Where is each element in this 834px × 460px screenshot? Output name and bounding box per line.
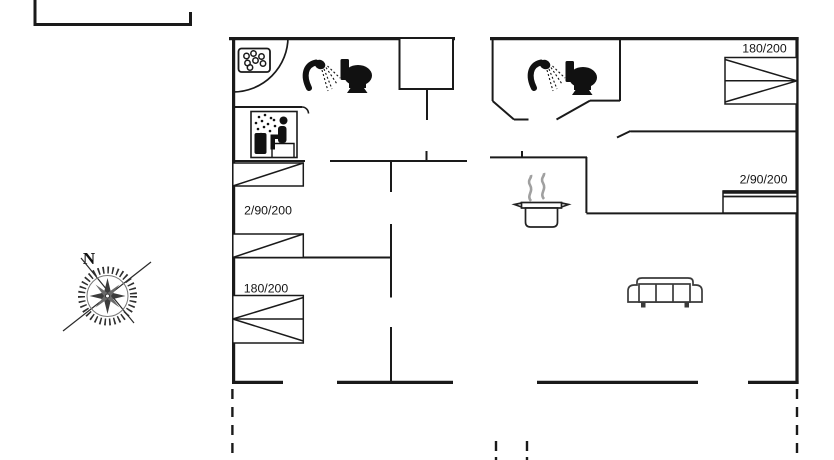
annex-outline	[35, 0, 191, 25]
washing-machine-icon	[239, 49, 271, 73]
floor-plan: N	[0, 0, 834, 460]
toilet-icon	[566, 61, 598, 95]
bed-size-label-left-bunk: 2/90/200	[244, 204, 292, 218]
bed-size-label-left-double: 180/200	[244, 282, 289, 296]
compass: N	[63, 249, 151, 331]
toilet-icon	[341, 59, 373, 93]
compass-north-label: N	[83, 249, 96, 268]
bed-double-right	[725, 58, 797, 105]
outer-walls	[229, 37, 799, 384]
bed-size-label-right-double: 180/200	[742, 42, 787, 56]
terrace-outline-dashed	[232, 389, 797, 460]
bed-double-left	[233, 296, 303, 344]
steam-lines	[529, 173, 544, 201]
compass-rose-icon	[63, 258, 151, 331]
bed-single-lower-left	[233, 234, 303, 258]
bed-size-label-right-bunk: 2/90/200	[740, 173, 788, 187]
closet-box	[400, 38, 454, 89]
shower-icon	[306, 58, 340, 91]
bed-single-upper-left	[233, 163, 303, 186]
floor-plan-canvas: N	[0, 0, 834, 460]
cooking-pot-icon	[515, 173, 569, 227]
sauna-stove	[255, 133, 267, 154]
sauna-icon	[251, 112, 297, 158]
bed-bunk-right	[723, 191, 797, 213]
shower-icon	[531, 58, 565, 91]
sofa-icon	[628, 278, 702, 308]
